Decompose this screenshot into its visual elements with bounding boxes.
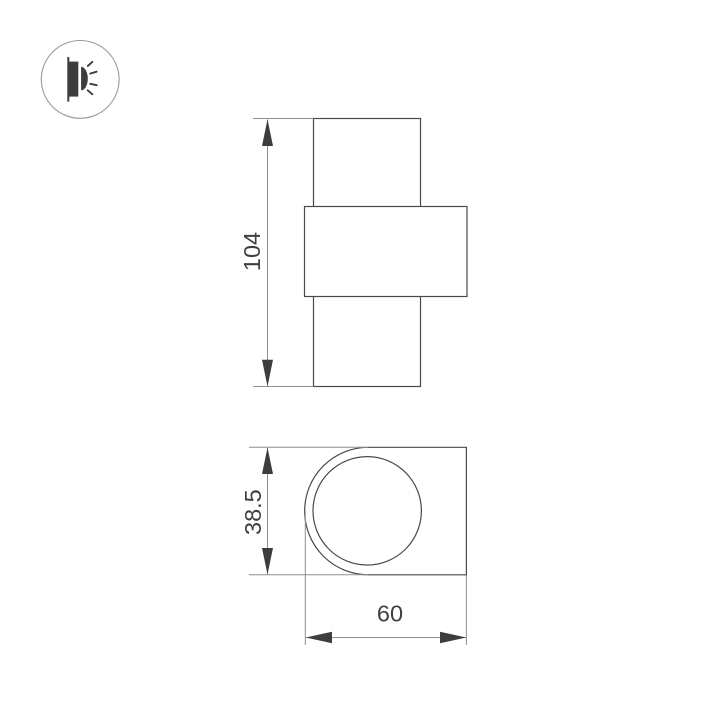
svg-text:104: 104 xyxy=(239,232,265,271)
svg-text:60: 60 xyxy=(377,600,403,626)
svg-text:38.5: 38.5 xyxy=(240,489,266,535)
